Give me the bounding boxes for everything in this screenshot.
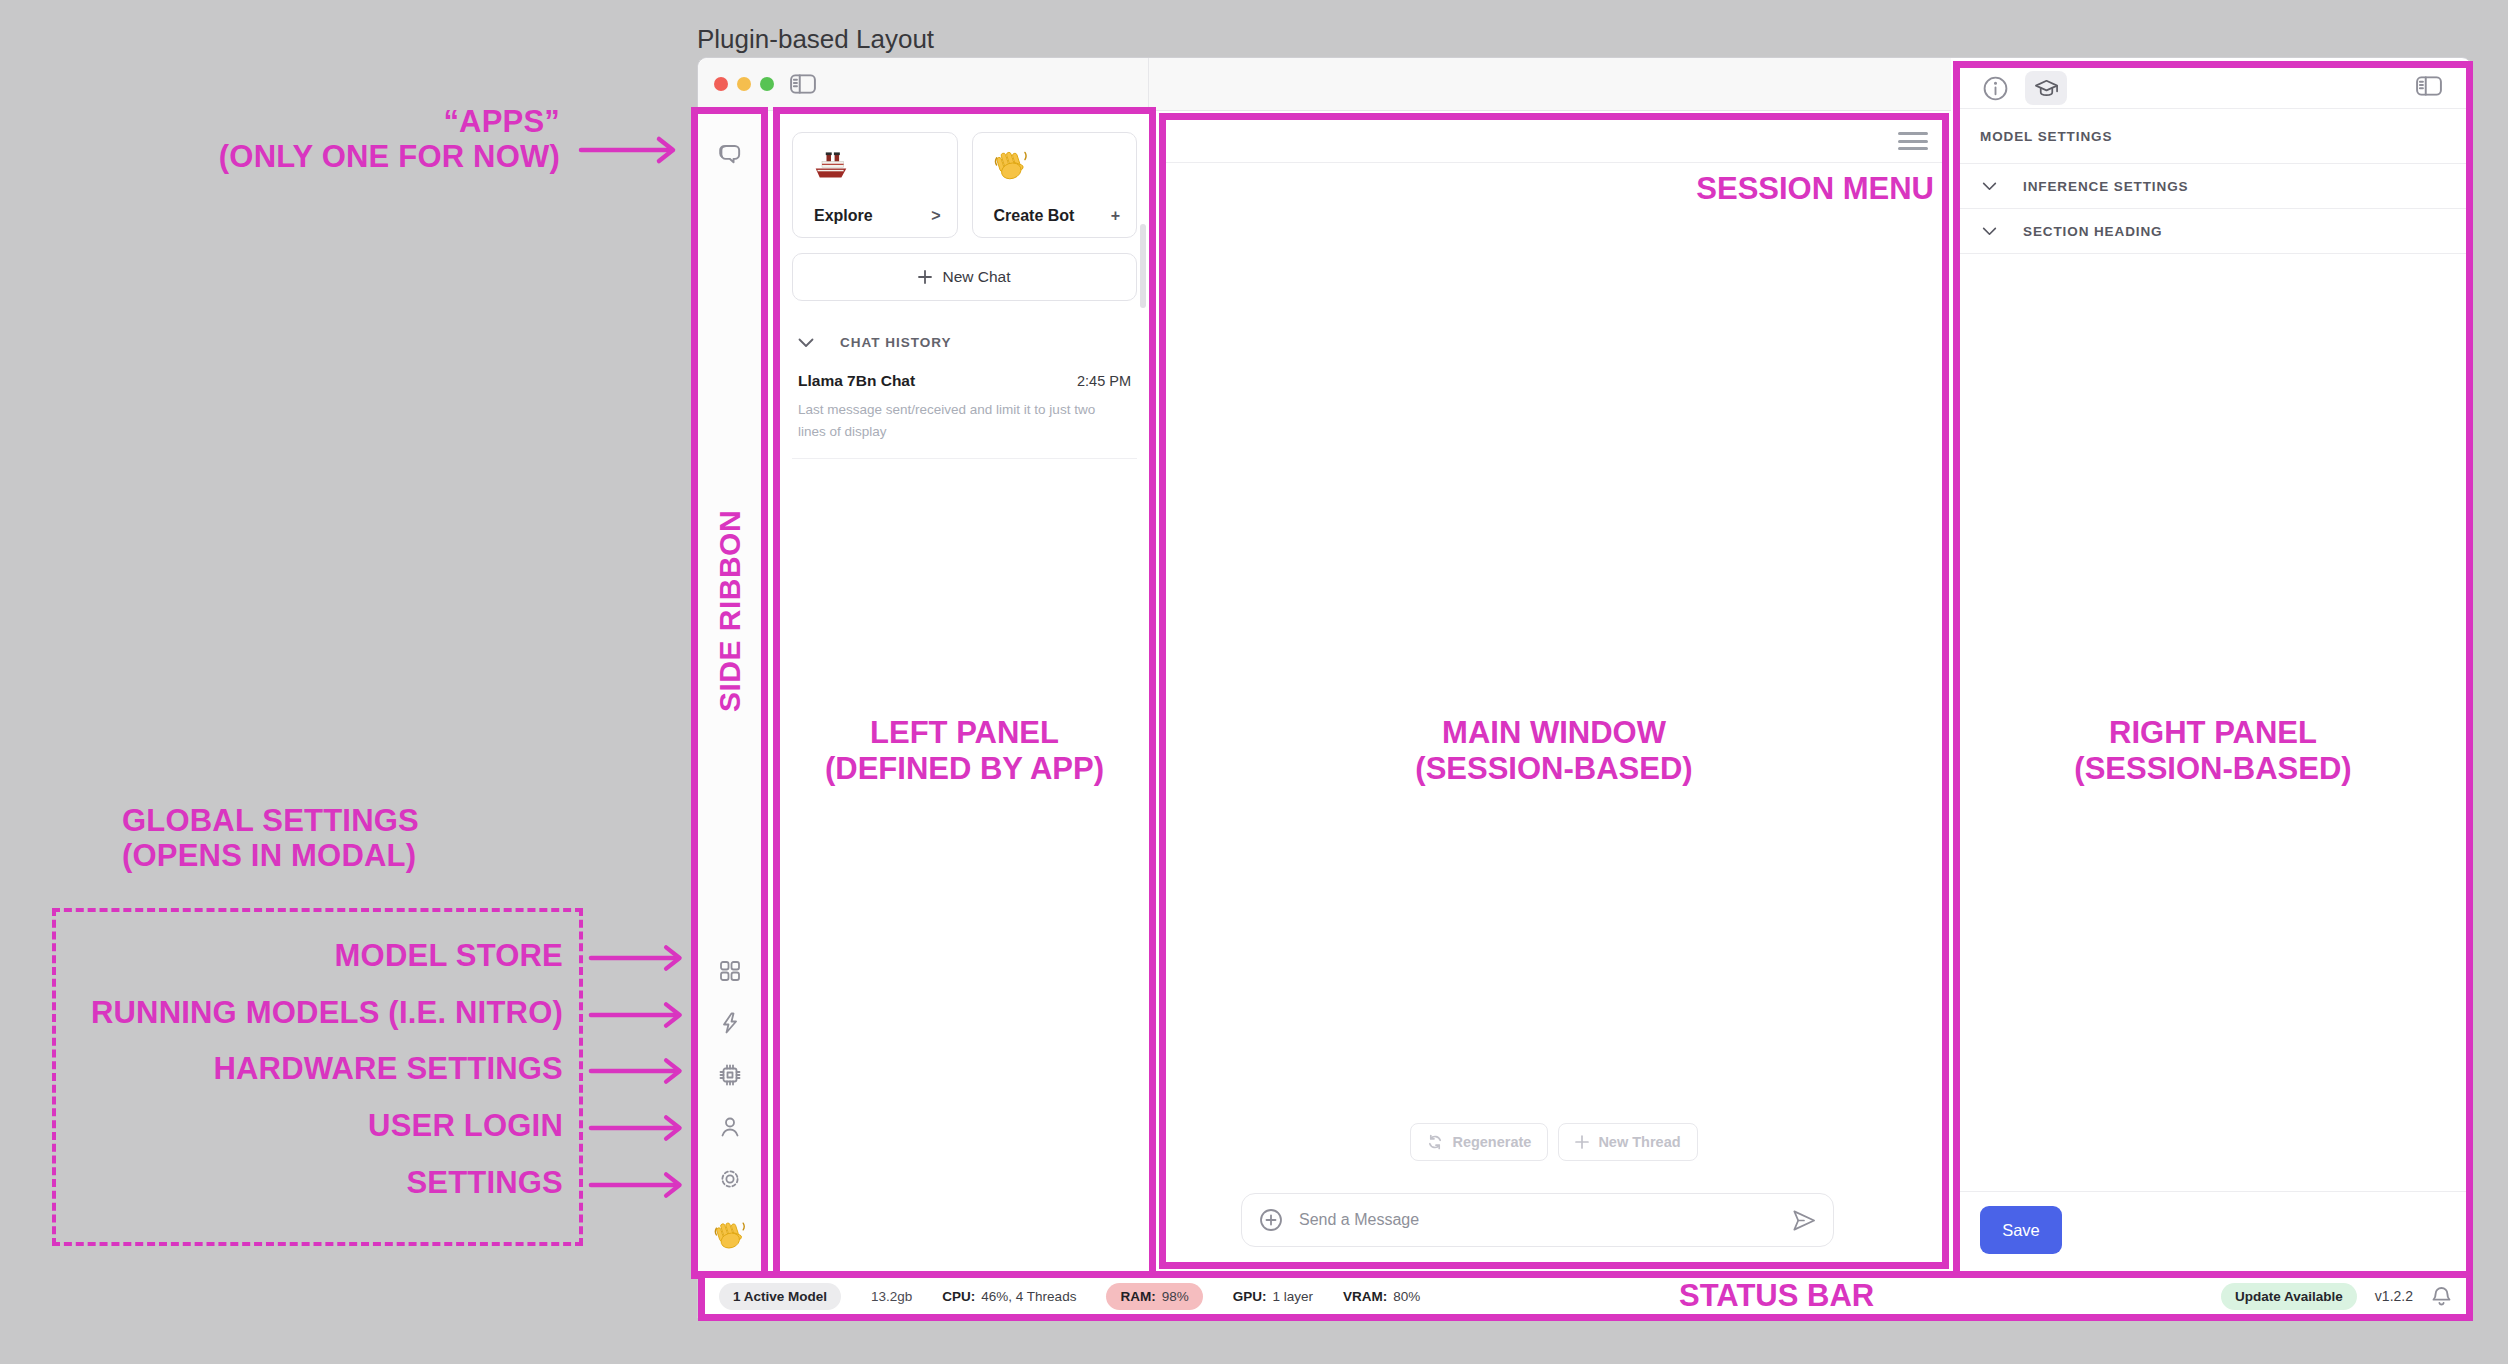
main-window-annotation: MAIN WINDOW (SESSION-BASED) [1166, 715, 1942, 787]
app-window: SIDE RIBBON [697, 57, 2472, 1320]
callout-settings: SETTINGS [406, 1165, 563, 1200]
inference-settings-label: INFERENCE SETTINGS [2023, 179, 2188, 194]
update-available-badge[interactable]: Update Available [2221, 1283, 2357, 1310]
send-icon[interactable] [1790, 1207, 1817, 1234]
new-thread-label: New Thread [1598, 1134, 1680, 1150]
gpu-stat: GPU: 1 layer [1233, 1289, 1313, 1304]
explore-card-chevron[interactable]: > [931, 207, 940, 225]
sidebar-toggle-icon[interactable] [790, 74, 816, 94]
user-login-icon[interactable] [717, 1114, 743, 1140]
settings-arrow [588, 1170, 696, 1200]
global-settings-line1: GLOBAL SETTINGS [122, 803, 419, 838]
chat-history-label: CHAT HISTORY [840, 335, 952, 350]
gpu-label: GPU: [1233, 1289, 1267, 1304]
right-panel-header [1960, 68, 2466, 109]
minimize-button[interactable] [737, 77, 751, 91]
ribbon-apps-group [698, 140, 761, 168]
annotation-global-settings: GLOBAL SETTINGS (OPENS IN MODAL) [122, 803, 419, 874]
notifications-bell-icon[interactable] [2431, 1285, 2452, 1307]
hardware-settings-icon[interactable] [717, 1062, 743, 1088]
regenerate-label: Regenerate [1452, 1134, 1531, 1150]
left-panel: Explore > Create Bot + [773, 107, 1156, 1279]
settings-gear-icon[interactable] [717, 1166, 743, 1192]
right-panel: MODEL SETTINGS INFERENCE SETTINGS SECTIO… [1953, 61, 2473, 1279]
message-input[interactable] [1297, 1210, 1777, 1230]
model-settings-header: MODEL SETTINGS [1960, 109, 2466, 164]
vram-label: VRAM: [1343, 1289, 1387, 1304]
annotation-apps-line1: “APPS” [219, 104, 560, 139]
scrollbar-thumb[interactable] [1140, 224, 1146, 308]
chat-preview: Last message sent/received and limit it … [798, 399, 1113, 442]
ram-value: 98% [1162, 1289, 1189, 1304]
chat-app-icon[interactable] [716, 140, 744, 168]
model-size: 13.2gb [871, 1289, 912, 1304]
vram-stat: VRAM: 80% [1343, 1289, 1420, 1304]
ram-stat-badge: RAM: 98% [1106, 1283, 1202, 1310]
chat-title: Llama 7Bn Chat [798, 372, 915, 390]
callout-settings-label: SETTINGS [406, 1165, 563, 1200]
chat-list-item[interactable]: Llama 7Bn Chat 2:45 PM Last message sent… [792, 372, 1137, 459]
attach-plus-icon[interactable] [1258, 1207, 1284, 1233]
explore-card-label: Explore [814, 207, 873, 225]
regenerate-button[interactable]: Regenerate [1410, 1123, 1548, 1161]
left-panel-annotation-line2: (DEFINED BY APP) [780, 751, 1149, 787]
hardware-settings-arrow [588, 1056, 696, 1086]
wave-app-icon[interactable] [713, 1218, 747, 1252]
apps-arrow [578, 135, 690, 165]
session-menu-annotation: SESSION MENU [1696, 171, 1934, 207]
side-ribbon-annotation: SIDE RIBBON [713, 510, 747, 712]
right-panel-footer: Save [1960, 1191, 2466, 1272]
user-login-arrow [588, 1113, 696, 1143]
app-version: v1.2.2 [2375, 1288, 2413, 1304]
status-bar-annotation: STATUS BAR [1679, 1278, 1874, 1314]
create-bot-card-label: Create Bot [994, 207, 1075, 225]
plus-icon [918, 270, 932, 284]
ram-label: RAM: [1120, 1289, 1155, 1304]
chat-time: 2:45 PM [1077, 373, 1131, 389]
new-chat-label: New Chat [942, 268, 1010, 286]
create-bot-card-plus[interactable]: + [1111, 207, 1120, 225]
callout-user-login-label: USER LOGIN [368, 1108, 563, 1143]
annotation-apps: “APPS” (ONLY ONE FOR NOW) [219, 104, 560, 175]
callout-model-store: MODEL STORE [335, 938, 563, 973]
right-panel-annotation: RIGHT PANEL (SESSION-BASED) [1960, 715, 2466, 787]
callout-hardware-settings: HARDWARE SETTINGS [213, 1051, 563, 1086]
ship-emoji-icon [813, 147, 849, 183]
callout-running-models-label: RUNNING MODELS (I.E. NITRO) [91, 995, 563, 1030]
running-models-arrow [588, 1000, 696, 1030]
main-window-annotation-line1: MAIN WINDOW [1166, 715, 1942, 751]
model-store-arrow [588, 943, 696, 973]
canvas: Plugin-based Layout “APPS” (ONLY ONE FOR… [0, 0, 2508, 1364]
main-topbar [1166, 120, 1942, 163]
traffic-lights [714, 77, 774, 91]
callout-user-login: USER LOGIN [368, 1108, 563, 1143]
right-panel-annotation-line2: (SESSION-BASED) [1960, 751, 2466, 787]
close-button[interactable] [714, 77, 728, 91]
message-composer[interactable] [1241, 1193, 1834, 1247]
save-button[interactable]: Save [1980, 1206, 2062, 1254]
callout-running-models: RUNNING MODELS (I.E. NITRO) [91, 995, 563, 1030]
inference-settings-section[interactable]: INFERENCE SETTINGS [1960, 164, 2466, 209]
cpu-stat: CPU: 46%, 4 Threads [942, 1289, 1076, 1304]
chevron-down-icon[interactable] [1982, 227, 1997, 236]
right-panel-annotation-line1: RIGHT PANEL [1960, 715, 2466, 751]
annotation-apps-line2: (ONLY ONE FOR NOW) [219, 139, 560, 174]
graduation-cap-icon [2034, 77, 2059, 99]
zoom-button[interactable] [760, 77, 774, 91]
ribbon-global-group [698, 958, 761, 1252]
section-heading-label: SECTION HEADING [2023, 224, 2163, 239]
model-settings-label: MODEL SETTINGS [1980, 129, 2112, 144]
chevron-down-icon[interactable] [1982, 182, 1997, 191]
session-menu-icon[interactable] [1898, 132, 1928, 150]
thread-actions: Regenerate New Thread [1166, 1123, 1942, 1161]
new-chat-button[interactable]: New Chat [792, 253, 1137, 301]
cpu-label: CPU: [942, 1289, 975, 1304]
titlebar [698, 58, 1951, 111]
status-bar: 1 Active Model 13.2gb CPU: 46%, 4 Thread… [698, 1271, 2473, 1321]
new-thread-button[interactable]: New Thread [1558, 1123, 1697, 1161]
cpu-value: 46%, 4 Threads [981, 1289, 1076, 1304]
page-title: Plugin-based Layout [697, 24, 934, 55]
assistant-tab[interactable] [2025, 71, 2067, 105]
left-panel-annotation-line1: LEFT PANEL [780, 715, 1149, 751]
main-window: SESSION MENU MAIN WINDOW (SESSION-BASED)… [1159, 113, 1949, 1269]
right-panel-toggle-icon[interactable] [2416, 76, 2442, 96]
refresh-icon [1427, 1134, 1443, 1150]
chat-history-header[interactable]: CHAT HISTORY [792, 335, 1137, 350]
side-ribbon: SIDE RIBBON [691, 107, 768, 1279]
create-bot-card[interactable]: Create Bot + [972, 132, 1138, 238]
app-cards: Explore > Create Bot + [792, 132, 1137, 238]
chevron-down-icon[interactable] [798, 338, 814, 348]
running-models-icon[interactable] [717, 1010, 743, 1036]
gpu-value: 1 layer [1272, 1289, 1313, 1304]
explore-card[interactable]: Explore > [792, 132, 958, 238]
global-settings-line2: (OPENS IN MODAL) [122, 838, 419, 873]
titlebar-divider [1148, 58, 1149, 110]
vram-value: 80% [1393, 1289, 1420, 1304]
model-store-icon[interactable] [717, 958, 743, 984]
callout-model-store-label: MODEL STORE [335, 938, 563, 973]
main-window-annotation-line2: (SESSION-BASED) [1166, 751, 1942, 787]
info-icon[interactable] [1982, 75, 2009, 102]
active-model-badge: 1 Active Model [719, 1283, 841, 1310]
section-heading-section[interactable]: SECTION HEADING [1960, 209, 2466, 254]
left-panel-annotation: LEFT PANEL (DEFINED BY APP) [780, 715, 1149, 787]
wave-emoji-icon [993, 147, 1029, 183]
callout-hardware-settings-label: HARDWARE SETTINGS [213, 1051, 563, 1086]
plus-icon [1575, 1135, 1589, 1149]
